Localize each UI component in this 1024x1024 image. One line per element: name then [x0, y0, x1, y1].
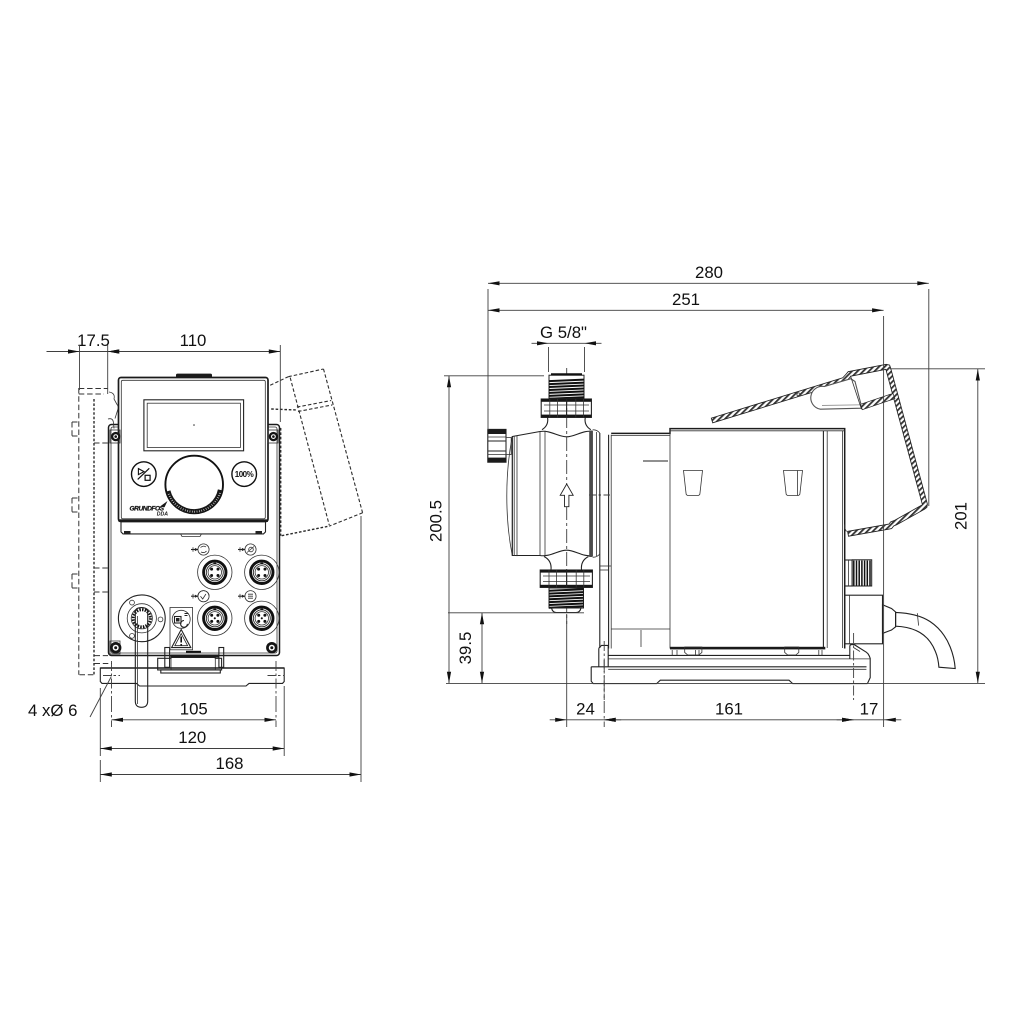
svg-text:200.5: 200.5 [427, 500, 446, 542]
svg-text:24: 24 [576, 699, 595, 718]
svg-text:120: 120 [178, 728, 206, 747]
svg-text:100%: 100% [235, 470, 254, 479]
svg-text:168: 168 [216, 754, 244, 773]
svg-text:DDA: DDA [157, 512, 168, 518]
svg-text:105: 105 [180, 699, 208, 718]
svg-text:39.5: 39.5 [456, 632, 475, 665]
svg-text:G 5/8": G 5/8" [540, 323, 587, 342]
svg-text:161: 161 [715, 699, 743, 718]
svg-text:201: 201 [952, 502, 971, 530]
svg-text:17.5: 17.5 [77, 331, 110, 350]
svg-text:280: 280 [695, 263, 723, 282]
svg-text:4 xØ 6: 4 xØ 6 [28, 701, 77, 720]
svg-text:251: 251 [672, 290, 700, 309]
svg-text:110: 110 [180, 331, 207, 350]
svg-text:17: 17 [860, 699, 879, 718]
